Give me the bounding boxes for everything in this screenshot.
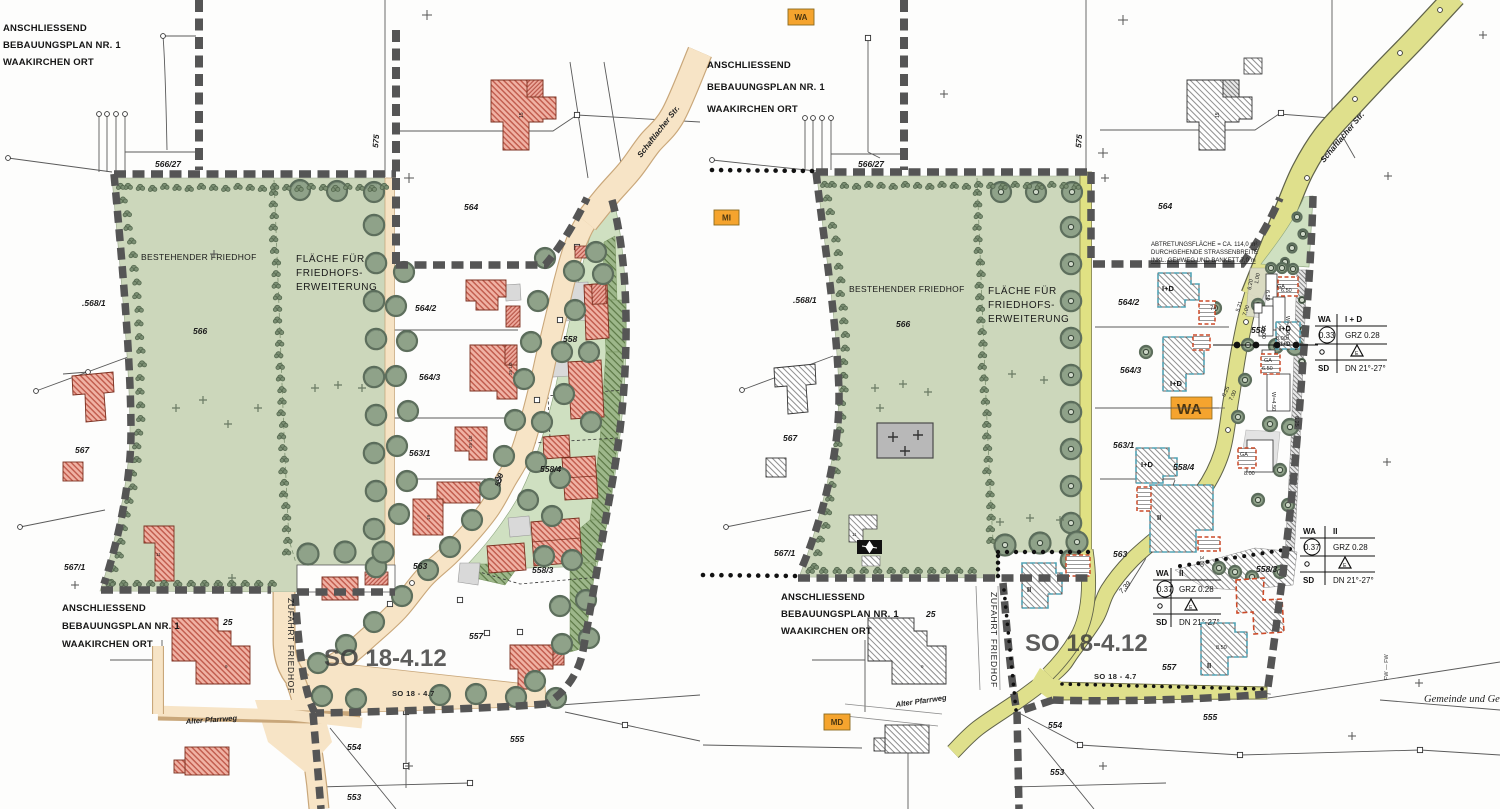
svg-text:25 1/2: 25 1/2 bbox=[468, 435, 473, 448]
svg-text:558/3: 558/3 bbox=[532, 565, 554, 575]
svg-text:ANSCHLIESSEND: ANSCHLIESSEND bbox=[781, 592, 865, 603]
svg-text:8.00: 8.00 bbox=[1244, 471, 1255, 477]
svg-text:558/3: 558/3 bbox=[1256, 564, 1278, 574]
svg-text:557: 557 bbox=[1162, 662, 1177, 672]
svg-text:I+D: I+D bbox=[1170, 379, 1182, 388]
svg-text:11: 11 bbox=[156, 552, 161, 557]
svg-text:563/1: 563/1 bbox=[1113, 440, 1135, 450]
svg-text:FRIEDHOFS-: FRIEDHOFS- bbox=[988, 300, 1055, 311]
svg-text:553: 553 bbox=[347, 792, 361, 802]
svg-text:566/27: 566/27 bbox=[155, 159, 182, 169]
svg-text:15: 15 bbox=[1215, 112, 1221, 118]
svg-text:566/27: 566/27 bbox=[858, 159, 885, 169]
svg-text:0.33: 0.33 bbox=[1319, 331, 1335, 340]
svg-text:WA: WA bbox=[1318, 315, 1331, 324]
svg-text:ANSCHLIESSEND: ANSCHLIESSEND bbox=[707, 60, 791, 71]
svg-text:563: 563 bbox=[413, 561, 427, 571]
svg-text:6.50: 6.50 bbox=[1281, 288, 1292, 294]
svg-text:SD: SD bbox=[1156, 618, 1167, 627]
svg-text:566: 566 bbox=[193, 326, 207, 336]
svg-text:563: 563 bbox=[1113, 549, 1127, 559]
svg-text:BEBAUUNGSPLAN NR. 1: BEBAUUNGSPLAN NR. 1 bbox=[3, 40, 121, 51]
svg-text:I + D: I + D bbox=[1345, 315, 1362, 324]
svg-text:I+D: I+D bbox=[1162, 284, 1174, 293]
svg-text:GRZ 0.28: GRZ 0.28 bbox=[1345, 331, 1380, 340]
svg-text:BEBAUUNGSPLAN NR. 1: BEBAUUNGSPLAN NR. 1 bbox=[62, 621, 180, 632]
svg-text:II: II bbox=[1333, 527, 1337, 536]
svg-text:567/1: 567/1 bbox=[64, 562, 86, 572]
svg-text:555: 555 bbox=[1203, 712, 1217, 722]
svg-text:ABTRETUNGSFLÄCHE = CA. 114,0 m: ABTRETUNGSFLÄCHE = CA. 114,0 m² bbox=[1151, 241, 1257, 248]
svg-text:564: 564 bbox=[1158, 201, 1172, 211]
svg-text:557: 557 bbox=[469, 631, 484, 641]
svg-text:MI: MI bbox=[722, 213, 731, 222]
svg-text:567/1: 567/1 bbox=[774, 548, 796, 558]
svg-text:WAAKIRCHEN ORT: WAAKIRCHEN ORT bbox=[3, 57, 94, 68]
svg-text:575: 575 bbox=[371, 134, 381, 149]
svg-text:7#: 7# bbox=[1210, 306, 1217, 312]
svg-text:WA: WA bbox=[795, 13, 808, 22]
svg-text:WAAKIRCHEN ORT: WAAKIRCHEN ORT bbox=[707, 104, 798, 115]
svg-text:SO 18 - 4.7: SO 18 - 4.7 bbox=[392, 689, 435, 698]
svg-text:FW — FW: FW — FW bbox=[1384, 654, 1390, 680]
svg-text:11: 11 bbox=[852, 532, 857, 537]
svg-text:WA: WA bbox=[1177, 401, 1202, 418]
svg-text:.568/1: .568/1 bbox=[82, 298, 106, 308]
svg-text:WAAKIRCHEN ORT: WAAKIRCHEN ORT bbox=[781, 626, 872, 637]
svg-text:SD: SD bbox=[1318, 364, 1329, 373]
svg-text:WAAKIRCHEN ORT: WAAKIRCHEN ORT bbox=[62, 639, 153, 650]
svg-text:564/3: 564/3 bbox=[419, 372, 441, 382]
svg-text:I+D: I+D bbox=[1141, 460, 1153, 469]
svg-text:25: 25 bbox=[925, 609, 936, 619]
svg-text:6.50: 6.50 bbox=[1262, 366, 1273, 372]
svg-text:8.50: 8.50 bbox=[1216, 645, 1227, 651]
svg-text:.568/1: .568/1 bbox=[793, 295, 817, 305]
svg-text:BEBAUUNGSPLAN NR. 1: BEBAUUNGSPLAN NR. 1 bbox=[707, 82, 825, 93]
svg-text:554: 554 bbox=[1048, 720, 1062, 730]
svg-text:WA: WA bbox=[1156, 569, 1169, 578]
svg-text:I+D: I+D bbox=[1281, 342, 1291, 348]
svg-text:GRZ 0.28: GRZ 0.28 bbox=[1179, 585, 1214, 594]
svg-text:GRZ 0.28: GRZ 0.28 bbox=[1333, 543, 1368, 552]
svg-text:13.00: 13.00 bbox=[1260, 325, 1266, 339]
svg-text:MD: MD bbox=[831, 718, 844, 727]
svg-text:567: 567 bbox=[783, 433, 798, 443]
svg-text:558: 558 bbox=[563, 334, 577, 344]
svg-text:558/4: 558/4 bbox=[540, 464, 562, 474]
svg-text:FLÄCHE FÜR: FLÄCHE FÜR bbox=[988, 285, 1057, 297]
svg-text:25 1/3: 25 1/3 bbox=[508, 362, 513, 375]
svg-text:BESTEHENDER FRIEDHOF: BESTEHENDER FRIEDHOF bbox=[141, 252, 257, 262]
svg-text:ZUFAHRT FRIEDHOF: ZUFAHRT FRIEDHOF bbox=[286, 598, 296, 694]
svg-text:GA: GA bbox=[1264, 358, 1272, 364]
svg-text:BESTEHENDER FRIEDHOF: BESTEHENDER FRIEDHOF bbox=[849, 284, 965, 294]
svg-text:ERWEITERUNG: ERWEITERUNG bbox=[988, 314, 1069, 325]
svg-text:564/3: 564/3 bbox=[1120, 365, 1142, 375]
svg-text:FRIEDHOFS-: FRIEDHOFS- bbox=[296, 268, 363, 279]
svg-text:19: 19 bbox=[426, 514, 431, 520]
svg-text:II: II bbox=[1027, 585, 1031, 594]
svg-text:553: 553 bbox=[1050, 767, 1064, 777]
svg-text:DN 21°-27°: DN 21°-27° bbox=[1333, 576, 1374, 585]
svg-text:25: 25 bbox=[222, 617, 233, 627]
svg-text:DURCHGEHENDE STRASSENBREITE: DURCHGEHENDE STRASSENBREITE bbox=[1151, 250, 1258, 256]
svg-text:II: II bbox=[1157, 513, 1161, 522]
svg-text:GA: GA bbox=[1240, 452, 1248, 458]
svg-text:8.00: 8.00 bbox=[1276, 336, 1287, 342]
svg-text:INKL. GEHWEG UND BANKETT 7,0 m: INKL. GEHWEG UND BANKETT 7,0 m bbox=[1151, 258, 1256, 264]
svg-text:BEBAUUNGSPLAN NR. 1: BEBAUUNGSPLAN NR. 1 bbox=[781, 609, 899, 620]
svg-text:II: II bbox=[1207, 661, 1211, 670]
svg-text:ANSCHLIESSEND: ANSCHLIESSEND bbox=[62, 603, 146, 614]
svg-text:SO 18-4.12: SO 18-4.12 bbox=[1025, 630, 1148, 657]
svg-text:SO 18 - 4.7: SO 18 - 4.7 bbox=[1094, 672, 1137, 681]
svg-text:II: II bbox=[1179, 569, 1183, 578]
svg-text:SO 18-4.12: SO 18-4.12 bbox=[324, 645, 447, 672]
svg-text:Gemeinde und Gema: Gemeinde und Gema bbox=[1424, 694, 1500, 705]
svg-text:0.37: 0.37 bbox=[1157, 585, 1173, 594]
svg-text:564: 564 bbox=[464, 202, 478, 212]
svg-text:SD: SD bbox=[1303, 576, 1314, 585]
svg-text:555: 555 bbox=[510, 734, 524, 744]
svg-text:567: 567 bbox=[75, 445, 90, 455]
svg-text:ERWEITERUNG: ERWEITERUNG bbox=[296, 282, 377, 293]
svg-text:FLÄCHE FÜR: FLÄCHE FÜR bbox=[296, 253, 365, 265]
svg-text:575: 575 bbox=[1074, 134, 1084, 149]
svg-text:6.50: 6.50 bbox=[1264, 290, 1270, 301]
svg-text:DN 21°-27°: DN 21°-27° bbox=[1179, 618, 1220, 627]
svg-text:554: 554 bbox=[347, 742, 361, 752]
svg-text:558/4: 558/4 bbox=[1173, 462, 1195, 472]
svg-text:DN 21°-27°: DN 21°-27° bbox=[1345, 364, 1386, 373]
svg-text:0.37: 0.37 bbox=[1304, 543, 1320, 552]
svg-text:564/2: 564/2 bbox=[415, 303, 437, 313]
svg-text:564/2: 564/2 bbox=[1118, 297, 1140, 307]
svg-text:ZUFAHRT FRIEDHOF: ZUFAHRT FRIEDHOF bbox=[989, 592, 999, 688]
svg-text:566: 566 bbox=[896, 319, 910, 329]
svg-text:W=4.50: W=4.50 bbox=[1270, 392, 1276, 411]
svg-text:WA: WA bbox=[1303, 527, 1316, 536]
svg-text:15: 15 bbox=[519, 112, 525, 118]
svg-text:3.00: 3.00 bbox=[1198, 556, 1204, 567]
svg-text:563/1: 563/1 bbox=[409, 448, 431, 458]
svg-text:ANSCHLIESSEND: ANSCHLIESSEND bbox=[3, 23, 87, 34]
svg-text:6.25: 6.25 bbox=[1293, 416, 1299, 427]
